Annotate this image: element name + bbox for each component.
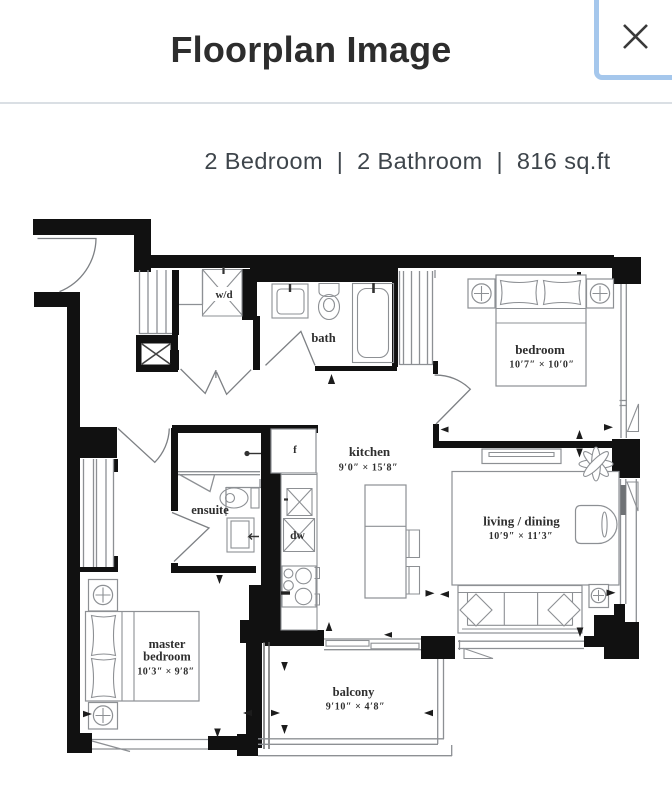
svg-text:ensuite: ensuite — [191, 503, 229, 517]
svg-text:10′7″ × 10′0″: 10′7″ × 10′0″ — [509, 360, 574, 371]
svg-text:9′10″ × 4′8″: 9′10″ × 4′8″ — [326, 702, 386, 713]
svg-text:bedroom: bedroom — [515, 342, 565, 357]
svg-text:10′3″ × 9′8″: 10′3″ × 9′8″ — [137, 667, 194, 678]
svg-text:living / dining: living / dining — [483, 514, 560, 529]
svg-text:balcony: balcony — [333, 685, 375, 699]
svg-text:bedroom: bedroom — [143, 650, 191, 664]
svg-text:dw: dw — [290, 530, 305, 542]
svg-text:9′0″ × 15′8″: 9′0″ × 15′8″ — [339, 463, 399, 474]
svg-text:bath: bath — [311, 331, 335, 345]
svg-text:kitchen: kitchen — [349, 444, 391, 459]
svg-text:f: f — [293, 444, 297, 456]
svg-text:w/d: w/d — [215, 289, 232, 301]
svg-text:10′9″ × 11′3″: 10′9″ × 11′3″ — [489, 531, 554, 542]
